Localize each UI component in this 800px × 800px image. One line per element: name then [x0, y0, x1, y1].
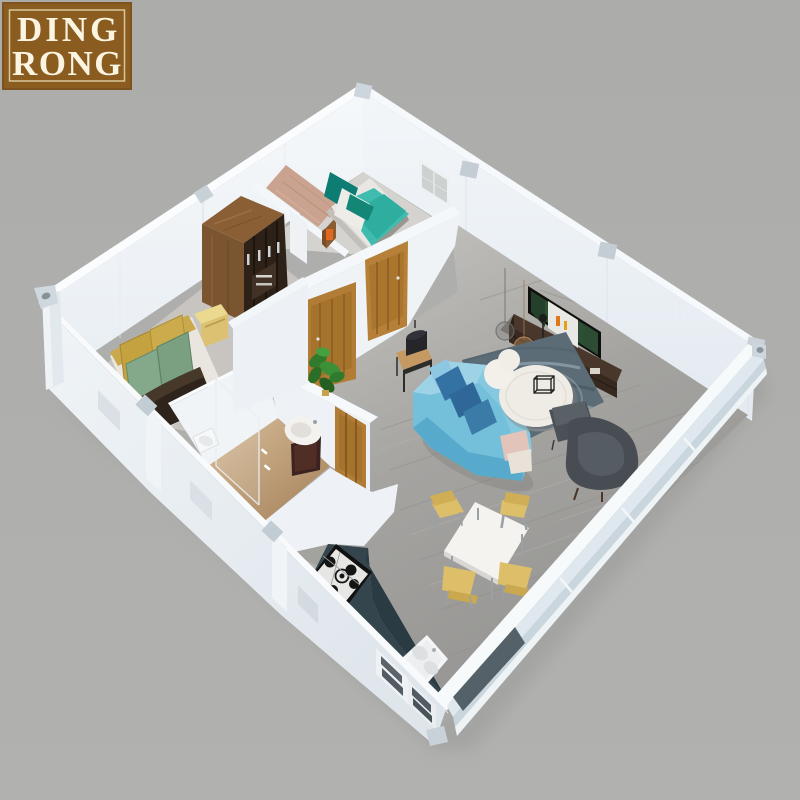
svg-text:RONG: RONG [12, 44, 123, 83]
